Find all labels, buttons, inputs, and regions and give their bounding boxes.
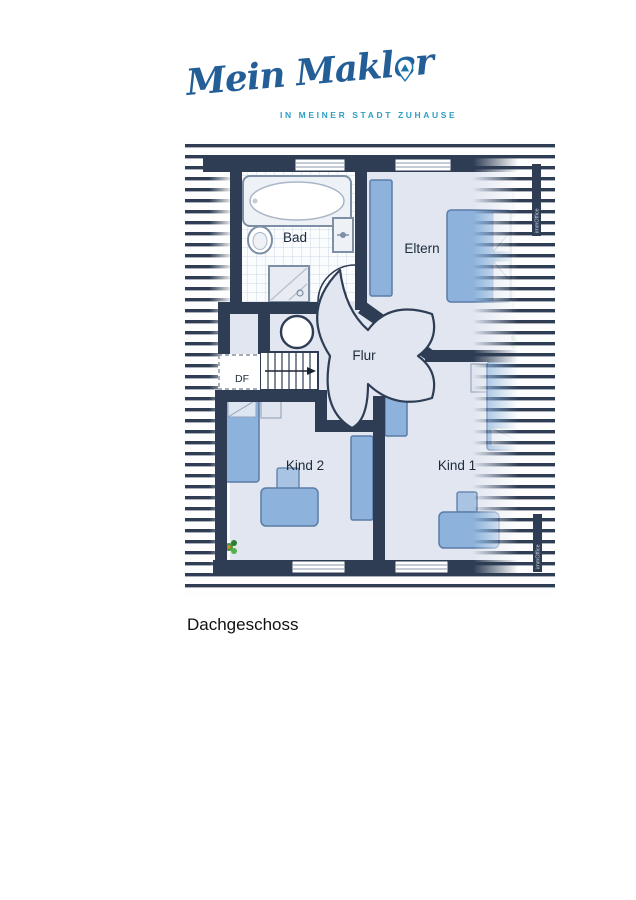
kind2-bed [225, 398, 259, 482]
window-bottom-1 [292, 561, 345, 573]
shower [269, 266, 309, 302]
page: Mein Makler IN MEINER STADT ZUHAUSE [0, 0, 636, 900]
label-eltern: Eltern [404, 241, 439, 256]
round-opening [281, 316, 313, 348]
roof-hatch-bottom [185, 574, 555, 595]
watermark-text: immOffice [535, 208, 541, 233]
label-kind1: Kind 1 [438, 458, 476, 473]
floor-caption: Dachgeschoss [187, 615, 299, 635]
label-bad: Bad [283, 230, 307, 245]
floorplan-drawing: Bad Eltern Flur Kind 2 Kind 1 DF immOffi… [185, 140, 555, 595]
wc [248, 227, 272, 254]
kind2-divider-wardrobe [351, 436, 373, 520]
roof-hatch-right [473, 140, 555, 595]
label-kind2: Kind 2 [286, 458, 324, 473]
watermark-text: immOffice [536, 544, 542, 569]
window-top-1 [295, 159, 345, 171]
window-bottom-2 [395, 561, 448, 573]
location-pin-icon [396, 58, 414, 87]
watermark-top-right: immOffice [532, 164, 541, 236]
label-df: DF [235, 373, 249, 385]
kind2-desk [261, 488, 318, 526]
floorplan: Bad Eltern Flur Kind 2 Kind 1 DF immOffi… [185, 140, 555, 595]
stairs [260, 352, 318, 390]
roof-hatch-top [185, 140, 555, 158]
watermark-bottom-right: immOffice [533, 514, 542, 572]
washbasin [333, 218, 353, 252]
logo-tagline: IN MEINER STADT ZUHAUSE [280, 110, 457, 120]
window-top-2 [395, 159, 451, 171]
logo: Mein Makler IN MEINER STADT ZUHAUSE [188, 60, 428, 130]
eltern-wardrobe [370, 180, 392, 296]
label-flur: Flur [352, 348, 376, 363]
